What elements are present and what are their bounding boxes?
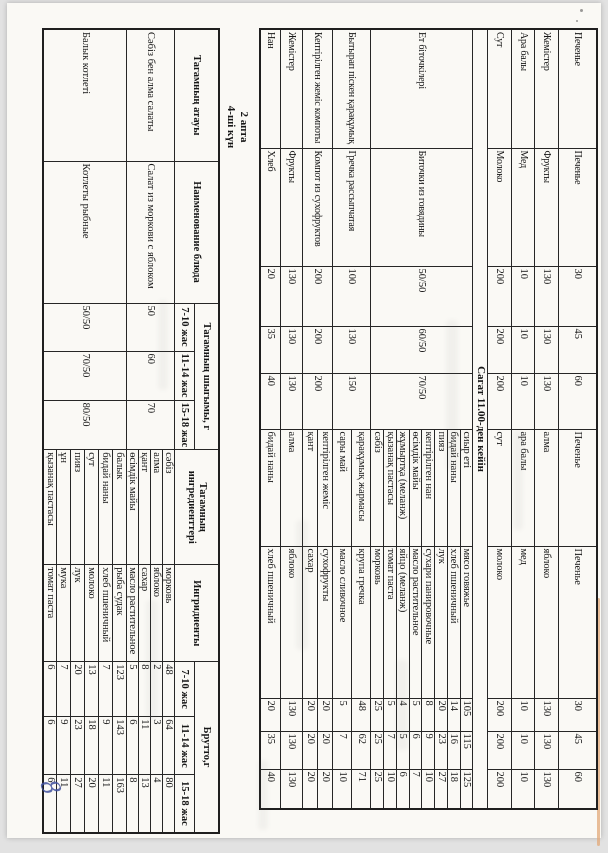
header-ingredients-kz: Тагамның ингредиенттері xyxy=(175,450,219,565)
brutto-value: 7 xyxy=(333,731,352,769)
header-ingredients-ru: Ингридиенты xyxy=(175,565,219,662)
dish-name-ru: Молоко xyxy=(488,148,512,266)
ingredient-name-ru: хлеб пшеничный xyxy=(99,565,113,662)
brutto-value: 6 xyxy=(409,731,422,769)
brutto-value: 7 xyxy=(57,662,71,717)
dish-name-ru: Мед xyxy=(512,148,535,266)
brutto-value: 25 xyxy=(371,698,384,731)
dish-name-ru: Фрукты xyxy=(535,148,559,266)
portion-value: 200 xyxy=(303,373,333,429)
ingredient-name-kz: балык xyxy=(113,450,127,565)
brutto-value: 8 xyxy=(422,698,435,731)
brutto-value: 18 xyxy=(85,717,99,775)
ingredient-name-kz: алма xyxy=(535,429,559,546)
brutto-value: 16 xyxy=(448,731,461,769)
bleed-through-smudge xyxy=(258,760,268,830)
brutto-value: 48 xyxy=(352,698,371,731)
brutto-value: 105 xyxy=(460,698,473,731)
brutto-value: 130 xyxy=(281,769,303,809)
ingredient-name-kz: ұн xyxy=(57,450,71,565)
dish-name-ru: Фрукты xyxy=(281,148,303,266)
rotated-page-content: ПеченьеПеченье304560ПеченьеПеченье304560… xyxy=(0,0,608,853)
brutto-value: 23 xyxy=(71,717,85,775)
ingredient-name-kz: бидай наны xyxy=(99,450,113,565)
table-row: Сәбіз бен алма салатыСалат из моркови с … xyxy=(163,29,175,833)
ingredient-name-kz: кептірілген нан xyxy=(422,429,435,546)
brutto-value: 20 xyxy=(318,698,333,731)
table-row: ЖемістерФрукты130130130алмаяблоко1301301… xyxy=(281,29,303,809)
brutto-value: 11 xyxy=(139,717,151,775)
portion-value: 130 xyxy=(281,326,303,373)
brutto-value: 10 xyxy=(333,769,352,809)
bleed-through-smudge xyxy=(446,320,458,470)
brutto-value: 10 xyxy=(512,698,535,731)
day-menu-table: Тагамның атауы Наименование блюда Тагамн… xyxy=(42,28,220,834)
ingredient-name-kz: жұмыртқа (меланж) xyxy=(397,429,410,546)
brutto-value: 11 xyxy=(99,775,113,833)
brutto-value: 20 xyxy=(260,698,281,731)
dish-name-ru: Котлеты рыбные xyxy=(43,161,127,303)
brutto-value: 80 xyxy=(163,775,175,833)
ingredient-name-kz: сут xyxy=(85,450,99,565)
ingredient-name-ru: сухари панировочные xyxy=(422,546,435,698)
ingredient-name-ru: рыба судак xyxy=(113,565,127,662)
brutto-value: 163 xyxy=(113,775,127,833)
brutto-value: 27 xyxy=(71,775,85,833)
table-row: Ара балыМед101010ара балымед101010 xyxy=(512,29,535,809)
brutto-value: 48 xyxy=(163,662,175,717)
ingredient-name-ru: хлеб пшеничный xyxy=(448,546,461,698)
brutto-value: 18 xyxy=(448,769,461,809)
ingredient-name-kz: сиыр еті xyxy=(460,429,473,546)
table-row: Бытырап піскен қарақұмықГречка рассыпчат… xyxy=(352,29,371,809)
ingredient-name-ru: масло растительное xyxy=(127,565,139,662)
ingredient-name-kz: қарақұмық жармасы xyxy=(352,429,371,546)
header-age-7-10: 7-10 жас xyxy=(175,662,195,717)
portion-value: 10 xyxy=(512,373,535,429)
portion-value: 200 xyxy=(488,326,512,373)
brutto-value: 200 xyxy=(488,731,512,769)
table-row: Балык котлетіКотлеты рыбные50/5070/5080/… xyxy=(113,29,127,833)
ingredient-name-kz: алма xyxy=(151,450,163,565)
brutto-value: 9 xyxy=(57,717,71,775)
portion-value: 80/50 xyxy=(43,400,127,450)
brutto-value: 7 xyxy=(384,731,397,769)
menu-continuation-table: ПеченьеПеченье304560ПеченьеПеченье304560… xyxy=(259,28,598,810)
bleed-through-smudge xyxy=(146,600,158,720)
week-label: 2 апта xyxy=(238,72,251,182)
ingredient-name-ru: масло сливочное xyxy=(333,546,352,698)
ingredient-name-ru: мука xyxy=(57,565,71,662)
ingredient-name-ru: яблоко xyxy=(535,546,559,698)
portion-value: 200 xyxy=(488,373,512,429)
header-age-11-14: 11-14 жас xyxy=(175,351,195,400)
portion-value: 150 xyxy=(333,373,371,429)
brutto-value: 14 xyxy=(448,698,461,731)
brutto-value: 20 xyxy=(71,662,85,717)
brutto-value: 125 xyxy=(460,769,473,809)
brutto-value: 13 xyxy=(85,662,99,717)
ingredient-name-kz: қант xyxy=(139,450,151,565)
scan-speck xyxy=(580,9,583,12)
dish-name-ru: Салат из моркови с яблоком xyxy=(127,161,175,303)
brutto-value: 9 xyxy=(99,717,113,775)
brutto-value: 3 xyxy=(151,717,163,775)
brutto-value: 20 xyxy=(303,769,318,809)
portion-value: 200 xyxy=(303,266,333,326)
brutto-value: 130 xyxy=(535,731,559,769)
ingredient-name-ru: масло растительное xyxy=(409,546,422,698)
header-output: Тагамның шыгымы, г xyxy=(195,303,219,450)
ingredient-name-ru: морковь xyxy=(163,565,175,662)
brutto-value: 23 xyxy=(435,731,448,769)
ingredient-name-ru: хлеб пшеничный xyxy=(260,546,281,698)
dish-name-kz: Балык котлеті xyxy=(43,29,127,161)
portion-value: 130 xyxy=(535,266,559,326)
portion-value: 200 xyxy=(303,326,333,373)
bleed-through-smudge xyxy=(396,660,408,750)
ingredient-name-kz: пияз xyxy=(71,450,85,565)
header-age-11-14: 11-14 жас xyxy=(175,717,195,775)
brutto-value: 20 xyxy=(303,698,318,731)
dish-name-ru: Биточки из говядины xyxy=(371,148,473,266)
table-row: Кептірілген жеміс компотыКомпот из сухоф… xyxy=(318,29,333,809)
portion-value: 30 xyxy=(559,266,597,326)
header-age-15-18: 15-18 жас xyxy=(175,400,195,450)
brutto-value: 8 xyxy=(127,775,139,833)
portion-value: 70/50 xyxy=(43,351,127,400)
ingredient-name-kz: сәбіз xyxy=(371,429,384,546)
bleed-through-smudge xyxy=(296,520,308,650)
brutto-value: 4 xyxy=(151,775,163,833)
portion-value: 130 xyxy=(281,266,303,326)
brutto-value: 30 xyxy=(559,698,597,731)
table-row: Ет біточкілеріБиточки из говядины50/5060… xyxy=(460,29,473,809)
ingredient-name-kz: Печенье xyxy=(559,429,597,546)
scan-speck xyxy=(576,20,578,22)
ingredient-name-kz: сары май xyxy=(333,429,352,546)
portion-value: 50/50 xyxy=(371,266,473,326)
brutto-value: 62 xyxy=(352,731,371,769)
brutto-value: 5 xyxy=(409,698,422,731)
brutto-value: 7 xyxy=(409,769,422,809)
portion-value: 130 xyxy=(281,373,303,429)
brutto-value: 20 xyxy=(435,698,448,731)
brutto-value: 20 xyxy=(303,731,318,769)
dish-name-kz: Ет біточкілері xyxy=(371,29,473,148)
brutto-value: 123 xyxy=(113,662,127,717)
portion-value: 40 xyxy=(260,373,281,429)
ingredient-name-kz: қызанақ пастасы xyxy=(43,450,57,565)
brutto-value: 6 xyxy=(127,717,139,775)
ingredient-name-kz: кептірілген жеміс xyxy=(318,429,333,546)
portion-value: 60 xyxy=(559,373,597,429)
brutto-value: 6 xyxy=(397,769,410,809)
portion-value: 20 xyxy=(260,266,281,326)
day-menu-header: Тагамның атауы Наименование блюда Тагамн… xyxy=(175,29,219,833)
scan-speck xyxy=(579,33,581,35)
bleed-through-smudge xyxy=(513,430,523,530)
dish-name-kz: Бытырап піскен қарақұмық xyxy=(333,29,371,148)
ingredient-name-ru: лук xyxy=(71,565,85,662)
brutto-value: 143 xyxy=(113,717,127,775)
portion-value: 70 xyxy=(127,400,175,450)
brutto-value: 25 xyxy=(371,769,384,809)
ingredient-name-ru: крупа гречка xyxy=(352,546,371,698)
portion-value: 200 xyxy=(488,266,512,326)
table-row: НанХлеб203540бидай наныхлеб пшеничный203… xyxy=(260,29,281,809)
brutto-value: 5 xyxy=(127,662,139,717)
ingredient-name-kz: сут xyxy=(488,429,512,546)
dish-name-kz: Ара балы xyxy=(512,29,535,148)
brutto-value: 9 xyxy=(422,731,435,769)
brutto-value: 130 xyxy=(535,698,559,731)
portion-value: 45 xyxy=(559,326,597,373)
dish-name-kz: Печенье xyxy=(559,29,597,148)
brutto-value: 130 xyxy=(281,698,303,731)
scanned-document-image: ПеченьеПеченье304560ПеченьеПеченье304560… xyxy=(0,0,608,853)
ingredient-name-kz: қызанақ пастасы xyxy=(384,429,397,546)
ingredient-name-kz: өсімдік майы xyxy=(127,450,139,565)
brutto-value: 10 xyxy=(384,769,397,809)
header-age-7-10: 7-10 жас xyxy=(175,303,195,351)
brutto-value: 10 xyxy=(512,769,535,809)
brutto-value: 5 xyxy=(384,698,397,731)
brutto-value: 25 xyxy=(371,731,384,769)
dish-name-kz: Жемістер xyxy=(535,29,559,148)
ingredient-name-ru: томат паста xyxy=(43,565,57,662)
brutto-value: 5 xyxy=(333,698,352,731)
brutto-value: 20 xyxy=(318,731,333,769)
brutto-value: 130 xyxy=(281,731,303,769)
portion-value: 130 xyxy=(535,326,559,373)
brutto-value: 45 xyxy=(559,731,597,769)
dish-name-ru: Гречка рассыпчатая xyxy=(333,148,371,266)
portion-value: 10 xyxy=(512,326,535,373)
brutto-value: 10 xyxy=(512,731,535,769)
brutto-value: 20 xyxy=(85,775,99,833)
menu-continuation-body: ПеченьеПеченье304560ПеченьеПеченье304560… xyxy=(260,29,597,809)
header-age-15-18: 15-18 жас xyxy=(175,775,195,833)
dish-name-kz: Жемістер xyxy=(281,29,303,148)
brutto-value: 71 xyxy=(352,769,371,809)
day-label: 4-ші күн xyxy=(225,72,238,182)
ingredient-name-kz: сәбіз xyxy=(163,450,175,565)
week-day-heading: 2 апта 4-ші күн xyxy=(225,72,250,182)
ingredient-name-ru: томат паста xyxy=(384,546,397,698)
brutto-value: 27 xyxy=(435,769,448,809)
dish-name-ru: Печенье xyxy=(559,148,597,266)
dish-name-kz: Кептірілген жеміс компоты xyxy=(303,29,333,148)
brutto-value: 200 xyxy=(488,769,512,809)
dish-name-kz: Нан xyxy=(260,29,281,148)
ingredient-name-ru: лук xyxy=(435,546,448,698)
ingredient-name-ru: мясо говяжье xyxy=(460,546,473,698)
ingredient-name-ru: мед xyxy=(512,546,535,698)
ingredient-name-ru: Печенье xyxy=(559,546,597,698)
bleed-through-smudge xyxy=(158,300,168,390)
ingredient-name-kz: өсімдік майы xyxy=(409,429,422,546)
brutto-value: 7 xyxy=(99,662,113,717)
section-break-label: Сагат 11.00-ден кейін xyxy=(473,29,488,809)
dish-name-ru: Хлеб xyxy=(260,148,281,266)
brutto-value: 200 xyxy=(488,698,512,731)
brutto-value: 13 xyxy=(139,775,151,833)
ingredient-name-ru: молоко xyxy=(85,565,99,662)
dish-name-ru: Компот из сухофруктов xyxy=(303,148,333,266)
brutto-value: 115 xyxy=(460,731,473,769)
table-row: ЖемістерФрукты130130130алмаяблоко1301301… xyxy=(535,29,559,809)
brutto-value: 20 xyxy=(318,769,333,809)
ingredient-name-ru: молоко xyxy=(488,546,512,698)
table-row: СутМолоко200200200сутмолоко200200200 xyxy=(488,29,512,809)
table-row: ПеченьеПеченье304560ПеченьеПеченье304560 xyxy=(559,29,597,809)
brutto-value: 6 xyxy=(43,717,57,775)
portion-value: 130 xyxy=(535,373,559,429)
brutto-value: 64 xyxy=(163,717,175,775)
dish-name-kz: Сут xyxy=(488,29,512,148)
portion-value: 10 xyxy=(512,266,535,326)
brutto-value: 6 xyxy=(43,662,57,717)
portion-value: 35 xyxy=(260,326,281,373)
portion-value: 130 xyxy=(333,326,371,373)
dish-name-kz: Сәбіз бен алма салаты xyxy=(127,29,175,161)
header-dish-kz: Тагамның атауы xyxy=(175,29,219,161)
portion-value: 50/50 xyxy=(43,303,127,351)
ingredient-name-kz: бидай наны xyxy=(260,429,281,546)
header-brutto: Брутто,г xyxy=(195,662,219,833)
brutto-value: 10 xyxy=(422,769,435,809)
ingredient-name-ru: морковь xyxy=(371,546,384,698)
portion-value: 100 xyxy=(333,266,371,326)
header-dish-ru: Наименование блюда xyxy=(175,161,219,303)
brutto-value: 60 xyxy=(559,769,597,809)
ingredient-name-ru: сухофрукты xyxy=(318,546,333,698)
brutto-value: 130 xyxy=(535,769,559,809)
